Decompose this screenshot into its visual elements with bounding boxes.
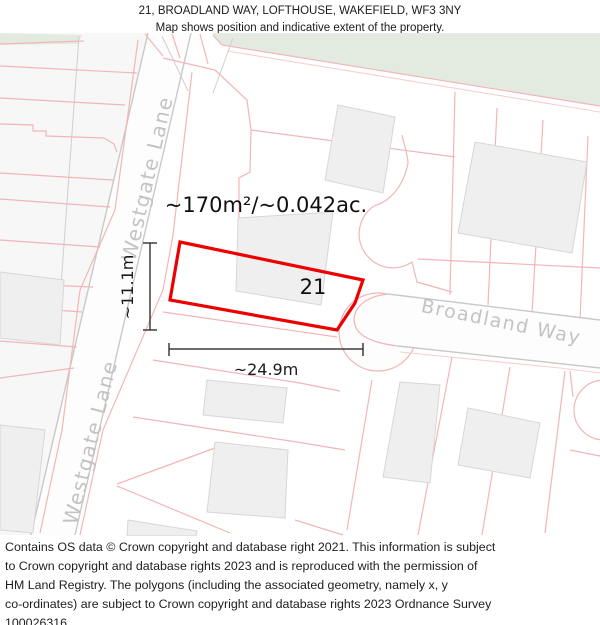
copyright-notice: Contains OS data © Crown copyright and d… <box>5 538 597 625</box>
building <box>207 442 288 518</box>
width-measure-label: ~24.9m <box>234 360 299 379</box>
copyright-line: Contains OS data © Crown copyright and d… <box>5 538 597 557</box>
copyright-line: HM Land Registry. The polygons (includin… <box>5 576 597 595</box>
building <box>0 272 64 345</box>
building <box>203 380 287 423</box>
building <box>458 142 587 253</box>
page-title: 21, BROADLAND WAY, LOFTHOUSE, WAKEFIELD,… <box>0 3 600 20</box>
area-label: ~170m²/~0.042ac. <box>165 193 367 217</box>
map-canvas: Westgate Lane Westgate Lane Broadland Wa… <box>0 33 600 536</box>
title-block: 21, BROADLAND WAY, LOFTHOUSE, WAKEFIELD,… <box>0 3 600 37</box>
depth-measure-label: ~11.1m <box>118 255 137 320</box>
copyright-line: to Crown copyright and database rights 2… <box>5 557 597 576</box>
building <box>325 105 395 193</box>
plot-number-label: 21 <box>300 275 327 299</box>
copyright-line: co-ordinates) are subject to Crown copyr… <box>5 595 597 614</box>
copyright-line: 100026316. <box>5 614 597 625</box>
property-map-page: 21, BROADLAND WAY, LOFTHOUSE, WAKEFIELD,… <box>0 0 600 625</box>
